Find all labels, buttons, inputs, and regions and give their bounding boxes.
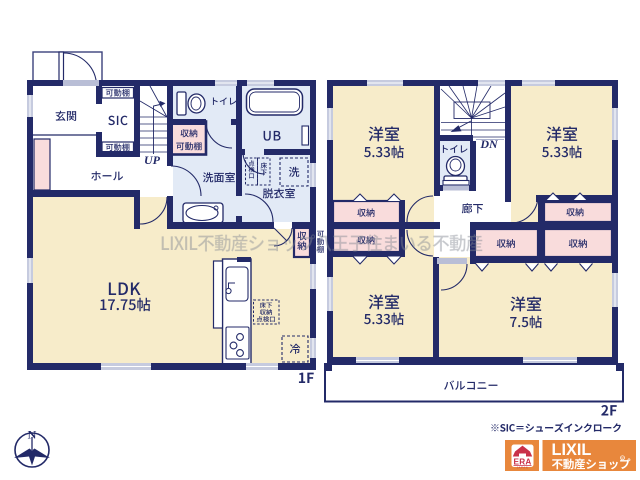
svg-text:ERA: ERA — [514, 457, 532, 466]
svg-text:LIXIL: LIXIL — [552, 441, 592, 459]
svg-text:JAPAN: JAPAN — [517, 465, 529, 469]
svg-text:UP: UP — [144, 153, 161, 167]
svg-text:DN: DN — [479, 137, 499, 151]
svg-text:R: R — [621, 456, 623, 460]
